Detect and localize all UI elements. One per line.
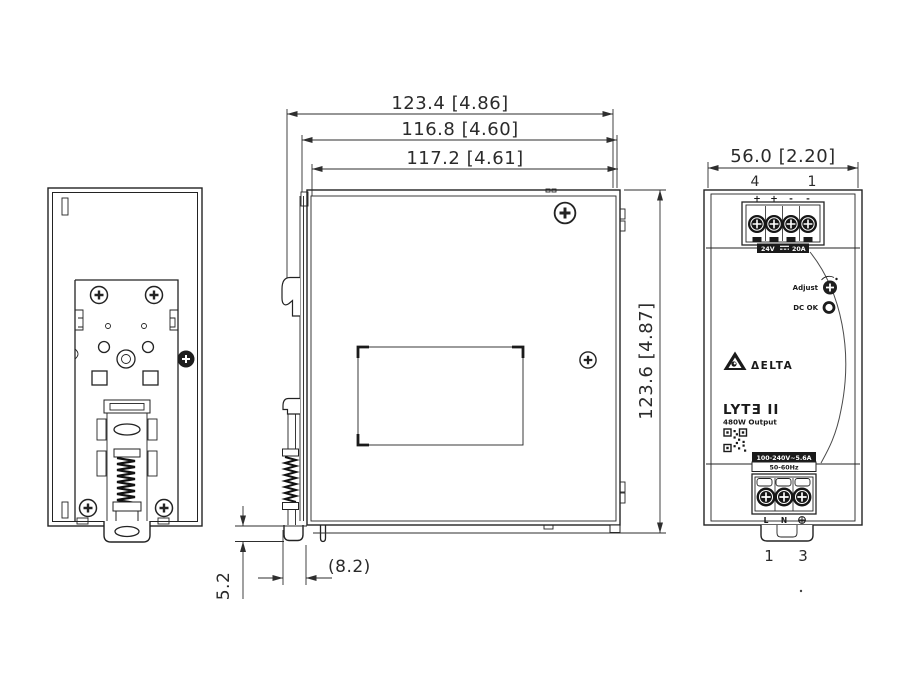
dim-clip-depth: 5.2 — [214, 572, 234, 601]
drawing-canvas: 4 1 + + - - 24V 20A — [0, 0, 914, 695]
line-terminal-label: L — [764, 516, 769, 525]
rear-view — [48, 188, 202, 542]
clip-foot — [104, 521, 150, 542]
input-voltage-rating: 100-240V~5.6A — [756, 455, 811, 462]
input-rating-label: 100-240V~5.6A 50-60Hz — [752, 452, 816, 472]
phillips-screw-icon — [91, 287, 108, 304]
front-view: 4 1 + + - - 24V 20A — [704, 174, 862, 592]
terminal-screw-icon — [775, 488, 794, 507]
output-rating-label: 24V 20A — [757, 244, 809, 254]
neutral-terminal-label: N — [781, 516, 787, 525]
output-voltage: 24V — [761, 246, 775, 253]
polarity-plus: + — [753, 195, 761, 205]
dc-ok-label: DC OK — [793, 304, 818, 312]
dim-height: 123.6 [4.87] — [636, 302, 657, 419]
polarity-minus: - — [806, 195, 810, 205]
brand-wordmark: ΔELTA — [751, 360, 793, 372]
power-rating: 480W Output — [723, 418, 777, 427]
bottom-connector-housing — [761, 525, 813, 541]
earth-ground-icon — [799, 517, 806, 524]
phillips-screw-icon — [80, 500, 97, 517]
side-view — [282, 189, 625, 542]
output-pin-number-4: 4 — [751, 174, 760, 190]
terminal-screw-icon — [765, 215, 783, 233]
phillips-screw-icon — [156, 500, 173, 517]
front-case-outline — [704, 190, 862, 525]
clip-spring — [285, 457, 296, 502]
output-current: 20A — [792, 246, 806, 253]
clip-foot — [284, 525, 303, 541]
dim-overall-depth: 123.4 [4.86] — [391, 93, 508, 114]
dim-body-depth: 116.8 [4.60] — [401, 119, 518, 140]
dc-ok-indicator: DC OK — [793, 303, 834, 313]
terminal-screw-icon — [757, 488, 776, 507]
input-pin-number-1: 1 — [764, 547, 774, 565]
stray-dot — [800, 590, 802, 592]
din-hook — [282, 278, 300, 317]
phillips-screw-icon — [146, 287, 163, 304]
dim-width: 56.0 [2.20] — [730, 146, 835, 167]
led-indicator-icon — [824, 303, 834, 313]
terminal-screw-icon — [748, 215, 766, 233]
phillips-screw-dark-icon — [178, 351, 195, 368]
model-name: LYTƎ II — [723, 402, 779, 418]
input-frequency-rating: 50-60Hz — [769, 465, 798, 472]
adjust-label: Adjust — [793, 284, 819, 292]
terminal-screw-icon — [793, 488, 812, 507]
dim-front-depth: 117.2 [4.61] — [406, 148, 523, 169]
input-pin-number-3: 3 — [798, 547, 808, 565]
technical-drawing: 4 1 + + - - 24V 20A — [0, 0, 914, 695]
phillips-screw-icon — [555, 203, 576, 224]
terminal-screw-icon — [799, 215, 817, 233]
phillips-screw-icon — [580, 352, 596, 368]
polarity-plus: + — [770, 195, 778, 205]
terminal-screw-icon — [782, 215, 800, 233]
polarity-minus: - — [789, 195, 793, 205]
output-pin-number-1: 1 — [808, 174, 817, 190]
side-case-outline — [307, 190, 620, 525]
dim-clip-offset: (8.2) — [328, 557, 371, 577]
